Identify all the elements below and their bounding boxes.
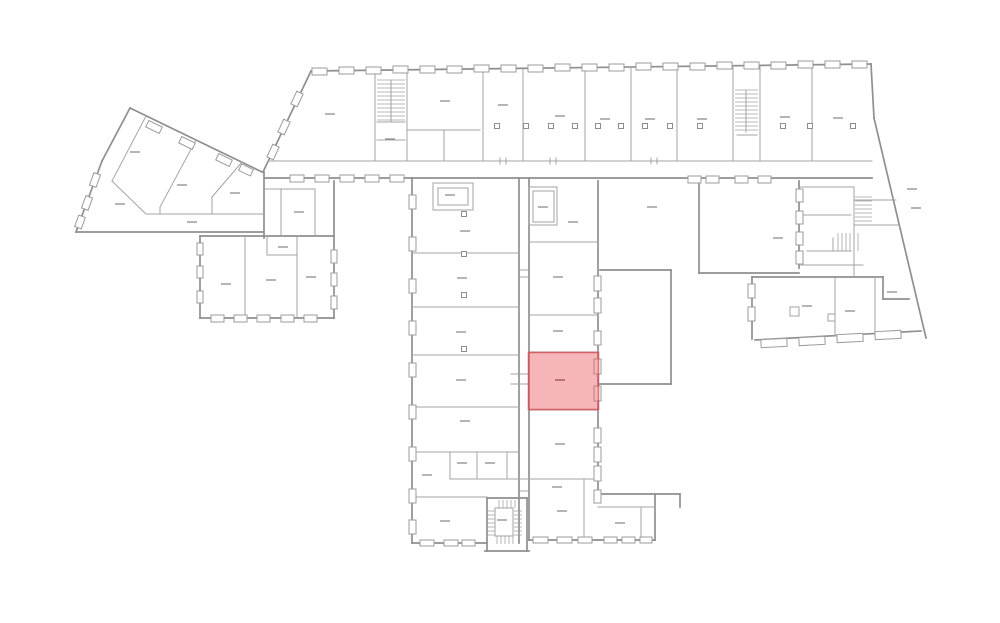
window-icon	[339, 67, 354, 74]
window-icon	[409, 405, 416, 419]
window-icon	[409, 489, 416, 503]
window-icon	[409, 363, 416, 377]
window-icon	[706, 176, 719, 183]
window-icon	[582, 64, 597, 71]
window-icon	[796, 232, 803, 245]
window-icon	[594, 428, 601, 443]
window-icon	[331, 296, 337, 309]
window-icon	[197, 266, 203, 278]
pillar-icon	[619, 124, 624, 129]
window-icon	[290, 175, 304, 182]
window-icon	[89, 173, 100, 188]
window-icon	[594, 298, 601, 313]
window-icon	[604, 537, 617, 543]
pillar-icon	[808, 124, 813, 129]
window-icon	[420, 66, 435, 73]
stairs-layer	[377, 80, 872, 544]
window-icon	[796, 251, 803, 264]
window-icon	[622, 537, 635, 543]
pillar-icon	[495, 124, 500, 129]
detail-rects-layer	[433, 183, 835, 536]
window-icon	[717, 62, 732, 69]
window-icon	[81, 196, 92, 211]
window-icon	[796, 189, 803, 202]
window-icon	[735, 176, 748, 183]
walls-inner-layer	[112, 65, 899, 540]
window-icon	[257, 315, 270, 322]
window-icon	[528, 65, 543, 72]
window-icon	[748, 284, 755, 298]
window-icon	[331, 273, 337, 286]
pillar-icon	[573, 124, 578, 129]
window-icon	[663, 63, 678, 70]
window-icon	[771, 62, 786, 69]
window-icon	[636, 63, 651, 70]
window-icon	[557, 537, 572, 543]
window-icon	[462, 540, 475, 546]
pillar-icon	[668, 124, 673, 129]
window-icon	[825, 61, 840, 68]
floorplan-svg	[0, 0, 1000, 623]
window-icon	[688, 176, 701, 183]
window-icon	[640, 537, 652, 543]
pillar-icon	[549, 124, 554, 129]
window-icon	[409, 279, 416, 293]
window-icon	[578, 537, 592, 543]
window-icon	[409, 321, 416, 335]
windows-layer	[75, 61, 902, 546]
window-icon	[533, 537, 548, 543]
window-icon	[501, 65, 516, 72]
window-icon	[594, 276, 601, 291]
window-icon	[409, 195, 416, 209]
window-icon	[744, 62, 759, 69]
window-icon	[340, 175, 354, 182]
pillar-icon	[596, 124, 601, 129]
pillar-icon	[462, 347, 467, 352]
window-icon	[281, 315, 294, 322]
window-icon	[798, 61, 813, 68]
window-icon	[799, 336, 825, 345]
window-icon	[390, 175, 404, 182]
window-icon	[366, 67, 381, 74]
window-icon	[796, 211, 803, 224]
window-icon	[312, 68, 327, 75]
window-icon	[852, 61, 867, 68]
pillar-icon	[698, 124, 703, 129]
window-icon	[278, 119, 290, 135]
pillar-icon	[462, 293, 467, 298]
window-icon	[837, 333, 863, 342]
window-icon	[609, 64, 624, 71]
window-icon	[875, 330, 901, 339]
window-icon	[594, 447, 601, 462]
window-icon	[197, 291, 203, 303]
highlight-layer	[529, 353, 599, 410]
window-icon	[690, 63, 705, 70]
pillar-icon	[462, 212, 467, 217]
window-icon	[365, 175, 379, 182]
window-icon	[447, 66, 462, 73]
window-icon	[409, 237, 416, 251]
window-icon	[594, 466, 601, 481]
highlighted-room[interactable]	[529, 353, 599, 410]
pillar-icon	[851, 124, 856, 129]
window-icon	[315, 175, 329, 182]
window-icon	[267, 144, 279, 160]
floorplan-canvas	[0, 0, 1000, 623]
window-icon	[409, 520, 416, 534]
window-icon	[331, 250, 337, 263]
window-icon	[758, 176, 771, 183]
window-icon	[211, 315, 224, 322]
window-icon	[304, 315, 317, 322]
window-icon	[409, 447, 416, 461]
window-icon	[234, 315, 247, 322]
room-label-dashes-layer	[115, 101, 921, 523]
window-icon	[75, 215, 86, 229]
window-icon	[474, 65, 489, 72]
window-icon	[291, 91, 303, 107]
window-icon	[748, 307, 755, 321]
pillar-icon	[462, 252, 467, 257]
window-icon	[420, 540, 434, 546]
window-icon	[594, 331, 601, 345]
window-icon	[761, 338, 787, 347]
pillar-icon	[781, 124, 786, 129]
window-icon	[393, 66, 408, 73]
window-icon	[197, 243, 203, 255]
window-icon	[444, 540, 458, 546]
window-icon	[594, 490, 601, 503]
pillar-icon	[643, 124, 648, 129]
pillar-icon	[524, 124, 529, 129]
window-icon	[555, 64, 570, 71]
